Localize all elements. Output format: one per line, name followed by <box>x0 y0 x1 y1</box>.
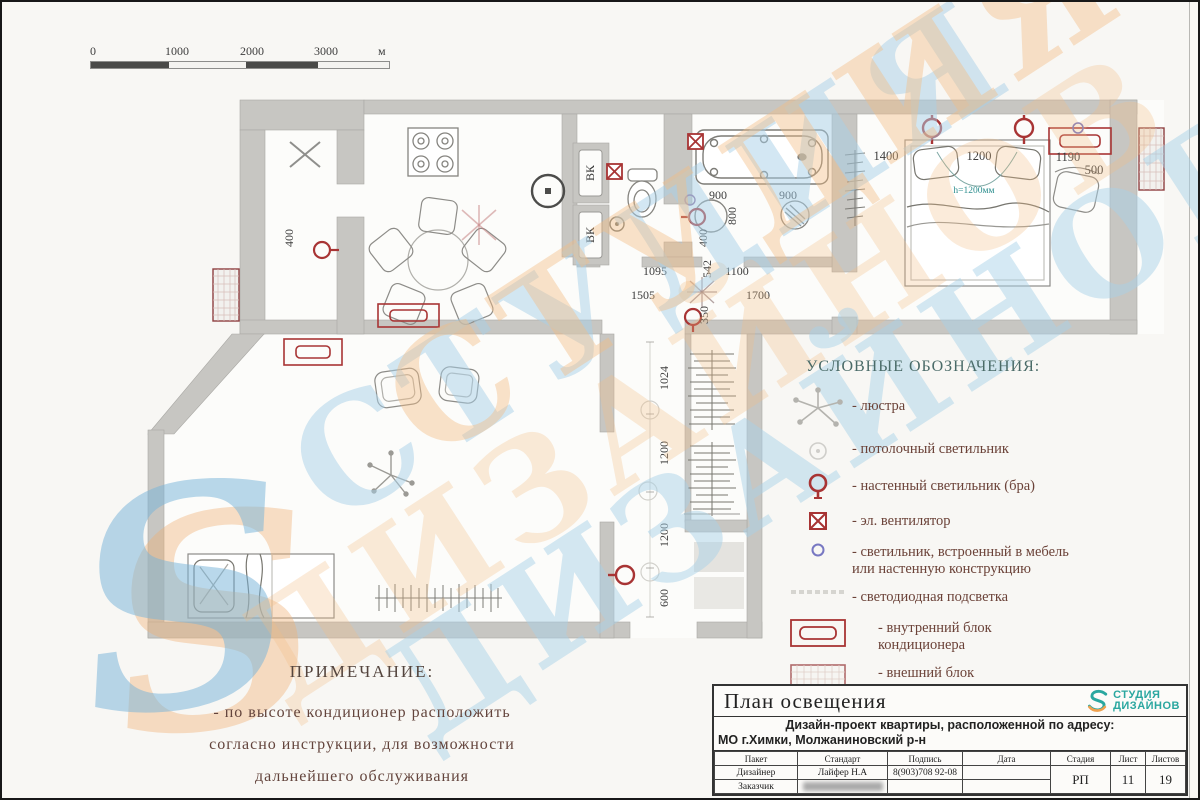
title-block-header-row: Пакет Стандарт Подпись Дата Стадия Лист … <box>715 752 1186 766</box>
led-strip-icon <box>784 587 852 597</box>
dim-cor-1505: 1505 <box>631 288 655 302</box>
living-bed <box>188 554 334 618</box>
title-block: План освещения СТУДИЯ ДИЗАЙНОВ Дизайн-пр… <box>712 684 1188 796</box>
legend-label-ac-indoor: - внутренний блок кондиционера <box>878 618 1048 654</box>
legend-label-ceiling-light: - потолочный светильник <box>852 439 1009 458</box>
project-address-line1: Дизайн-проект квартиры, расположенной по… <box>718 718 1182 733</box>
note-line-1: - по высоте кондиционер расположить <box>152 704 572 722</box>
scale-tick-3000: 3000 <box>314 44 338 59</box>
designer-row: Дизайнер Лайфер Н.А 8(903)708 92-08 РП 1… <box>715 766 1186 780</box>
designer-role: Дизайнер <box>715 766 798 780</box>
note-line-2: согласно инструкции, для возможности <box>152 736 572 754</box>
bath-sink <box>781 201 809 229</box>
client-name-redacted <box>798 780 888 794</box>
dim-cor-1700: 1700 <box>746 288 770 302</box>
note-line-3: дальнейшего обслуживания <box>152 768 572 786</box>
sheets-total: 19 <box>1146 766 1186 794</box>
legend: УСЛОВНЫЕ ОБОЗНАЧЕНИЯ: - люстра <box>784 358 1114 708</box>
dim-bedroom-1190: 1190 <box>1056 150 1081 164</box>
chandelier-icon <box>784 386 852 430</box>
bedroom-bed-note: h=1200мм <box>953 186 994 196</box>
col-header-standart: Стандарт <box>798 752 888 766</box>
dim-hall-1200a: 1200 <box>657 441 671 465</box>
col-header-listov: Листов <box>1146 752 1186 766</box>
dim-bath-400: 400 <box>696 229 710 247</box>
dim-bath-right: 900 <box>779 188 797 202</box>
designer-phone: 8(903)708 92-08 <box>888 766 963 780</box>
legend-label-led: - светодиодная подсветка <box>852 587 1008 606</box>
dim-cor-1095: 1095 <box>643 264 667 278</box>
dim-cor-1100: 1100 <box>725 264 749 278</box>
col-header-data: Дата <box>963 752 1051 766</box>
wall-light-icon <box>784 472 852 502</box>
designer-name: Лайфер Н.А <box>798 766 888 780</box>
kitchen-stove <box>408 128 458 176</box>
stage-value: РП <box>1051 766 1111 794</box>
legend-label-fan: - эл. вентилятор <box>852 511 951 530</box>
wc-fan <box>607 164 622 179</box>
scale-tick-0: 0 <box>90 44 96 59</box>
ac-indoor-icon <box>784 618 852 648</box>
logo-s-icon <box>1086 689 1110 713</box>
drawing-title: План освещения <box>714 686 1052 716</box>
sheet-number: 11 <box>1111 766 1146 794</box>
dim-cor-350: 350 <box>697 306 711 324</box>
note-block: ПРИМЕЧАНИЕ: - по высоте кондиционер расп… <box>152 662 572 800</box>
drawing-sheet: ВК ВК <box>0 0 1200 800</box>
dim-balcony: 400 <box>282 229 296 247</box>
legend-label-wall-light: - настенный светильник (бра) <box>852 472 1035 495</box>
scale-tick-1000: 1000 <box>165 44 189 59</box>
scale-bar: 0 1000 2000 3000 м <box>90 44 390 69</box>
dim-bedroom-500: 500 <box>1085 163 1104 177</box>
col-header-list: Лист <box>1111 752 1146 766</box>
legend-label-chandelier: - люстра <box>852 386 905 415</box>
col-header-paket: Пакет <box>715 752 798 766</box>
fan-icon <box>784 511 852 531</box>
dim-bedroom-1200: 1200 <box>967 149 992 163</box>
project-address-line2: МО г.Химки, Молжаниновский р-н <box>718 733 1182 748</box>
legend-title: УСЛОВНЫЕ ОБОЗНАЧЕНИЯ: <box>806 358 1114 376</box>
bath-fan <box>688 134 703 149</box>
bathtub <box>696 130 828 184</box>
shaft-label-1: ВК <box>583 164 597 181</box>
dim-hall-600: 600 <box>657 589 671 607</box>
wc-toilet <box>628 169 657 217</box>
scale-tick-2000: 2000 <box>240 44 264 59</box>
col-header-stadia: Стадия <box>1051 752 1111 766</box>
col-header-podpis: Подпись <box>888 752 963 766</box>
ceiling-light-icon <box>784 439 852 463</box>
dim-hall-1200b: 1200 <box>657 523 671 547</box>
dim-bath-left: 900 <box>709 188 727 202</box>
dim-cor-542: 542 <box>700 260 714 278</box>
corridor-chandelier <box>687 277 717 307</box>
dim-hall-1024: 1024 <box>657 366 671 390</box>
dim-bedroom-1400: 1400 <box>874 149 899 163</box>
studio-logo: СТУДИЯ ДИЗАЙНОВ <box>1052 686 1186 716</box>
scale-unit: м <box>378 44 386 59</box>
scale-bar-strip <box>90 61 390 69</box>
logo-text-line2: ДИЗАЙНОВ <box>1113 701 1180 712</box>
shaft-label-2: ВК <box>583 226 597 243</box>
built-in-light-icon <box>784 542 852 558</box>
dim-bath-800: 800 <box>725 207 739 225</box>
ac-outdoor-left <box>213 269 239 321</box>
ac-outdoor-right <box>1139 128 1164 190</box>
client-role: Заказчик <box>715 780 798 794</box>
legend-label-built-in-light: - светильник, встроенный в мебель или на… <box>852 542 1087 578</box>
note-title: ПРИМЕЧАНИЕ: <box>152 662 572 682</box>
